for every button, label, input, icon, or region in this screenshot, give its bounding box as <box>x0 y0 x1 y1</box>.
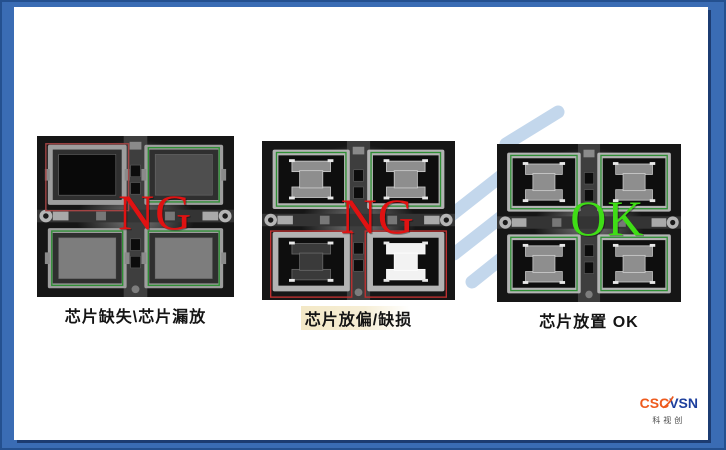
slide-sheet: NG 芯片缺失\芯片漏放 NG 芯片放偏/缺损 OK 芯片放置 OK <box>14 7 708 440</box>
logo-tagline: 科视创 <box>640 415 698 426</box>
verdict-label: OK <box>570 193 644 243</box>
logo-text-csc: CSC <box>640 395 670 411</box>
panel-caption: 芯片放置 OK <box>497 308 681 332</box>
inspection-panel-misplaced: NG 芯片放偏/缺损 <box>262 141 455 330</box>
panel-caption: 芯片放偏/缺损 <box>262 306 455 330</box>
panel-caption-text: 芯片缺失\芯片漏放 <box>61 303 210 327</box>
inspection-panel-missing: NG 芯片缺失\芯片漏放 <box>37 136 234 327</box>
inspection-panel-ok: OK 芯片放置 OK <box>497 144 681 332</box>
logo-cscvsn: CSCVSN 科视创 <box>640 395 698 426</box>
panel-caption-text: 芯片放偏/缺损 <box>301 306 416 330</box>
logo-wordmark: CSCVSN <box>640 396 698 410</box>
panel-caption-text: 芯片放置 OK <box>535 308 642 332</box>
panel-caption: 芯片缺失\芯片漏放 <box>37 303 234 327</box>
slide-frame: NG 芯片缺失\芯片漏放 NG 芯片放偏/缺损 OK 芯片放置 OK <box>0 0 726 450</box>
verdict-label: NG <box>341 191 415 241</box>
logo-text-vsn: VSN <box>669 395 698 411</box>
verdict-label: NG <box>118 187 192 237</box>
